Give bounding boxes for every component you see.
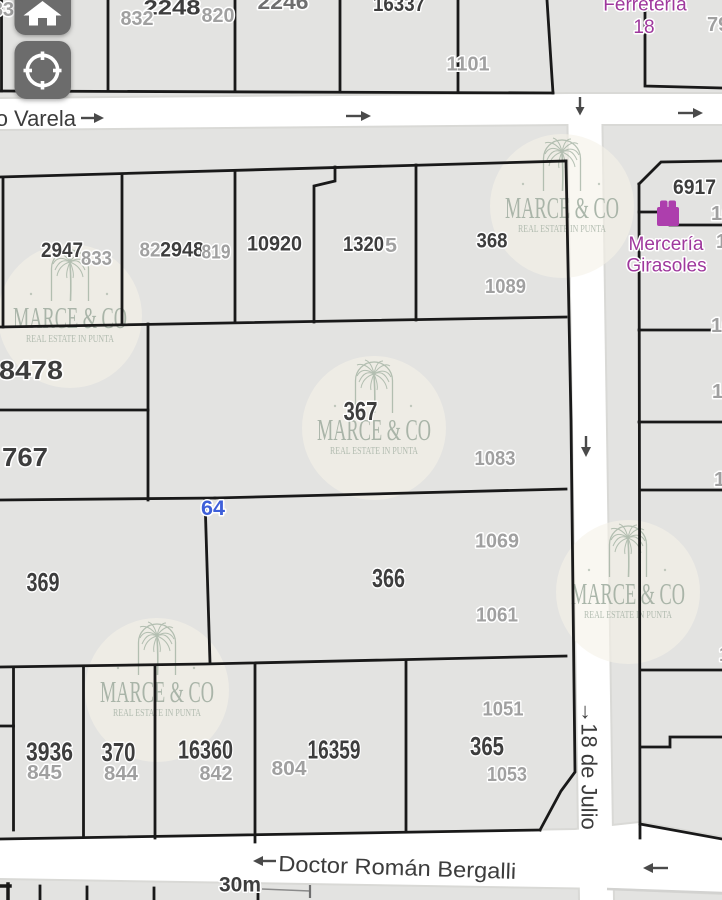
svg-text:844: 844 [104,763,139,785]
svg-text:10: 10 [711,315,722,337]
svg-text:→18 de Julio: →18 de Julio [577,701,602,829]
svg-text:842: 842 [200,763,233,785]
svg-text:18: 18 [633,17,654,38]
svg-text:o Varela: o Varela [0,106,77,131]
svg-text:64: 64 [201,497,225,520]
svg-text:5: 5 [385,235,397,257]
svg-text:1101: 1101 [447,54,490,76]
svg-text:1: 1 [714,469,722,491]
svg-text:10: 10 [712,381,722,403]
svg-text:796: 796 [707,14,722,36]
svg-text:Mercería: Mercería [629,234,704,255]
svg-text:767: 767 [2,442,48,472]
svg-text:2246: 2246 [258,0,309,14]
svg-text:1089: 1089 [485,276,526,298]
svg-text:365: 365 [470,731,504,761]
svg-text:1061: 1061 [476,605,518,627]
svg-text:1069: 1069 [475,531,519,553]
svg-text:30m: 30m [219,874,261,897]
svg-text:2948: 2948 [160,239,204,262]
svg-text:Girasoles: Girasoles [626,256,706,277]
svg-text:804: 804 [272,758,308,780]
svg-text:832: 832 [121,8,154,30]
svg-text:366: 366 [372,563,405,593]
svg-text:819: 819 [202,242,231,264]
svg-text:16359: 16359 [308,735,361,765]
svg-text:845: 845 [27,762,62,784]
svg-text:Ferretería: Ferretería [603,0,687,16]
svg-text:368: 368 [477,230,508,253]
svg-text:1320: 1320 [343,233,384,256]
svg-text:369: 369 [27,567,60,597]
svg-text:8478: 8478 [0,355,63,385]
svg-text:6917: 6917 [673,176,716,199]
svg-text:83: 83 [0,0,14,21]
svg-text:820: 820 [202,5,235,27]
svg-text:367: 367 [344,396,378,426]
svg-text:2947: 2947 [41,239,83,262]
svg-text:16337: 16337 [373,0,425,16]
svg-text:1: 1 [716,231,722,253]
svg-text:1051: 1051 [483,699,524,721]
svg-text:1083: 1083 [475,448,516,470]
svg-text:10: 10 [711,203,722,225]
svg-text:16360: 16360 [178,735,233,765]
svg-text:1053: 1053 [487,764,527,786]
svg-text:10920: 10920 [247,233,302,256]
svg-text:833: 833 [81,248,112,270]
svg-text:82: 82 [140,240,161,262]
